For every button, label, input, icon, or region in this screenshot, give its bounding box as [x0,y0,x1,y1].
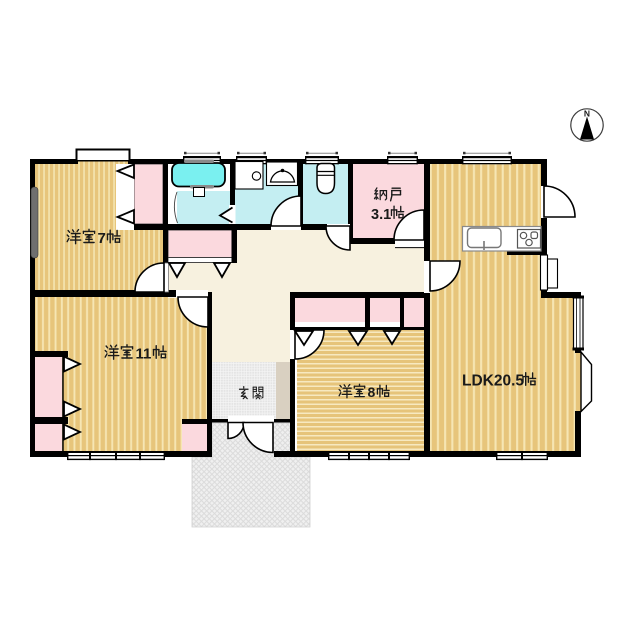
svg-text:8: 8 [368,384,376,400]
svg-text:7: 7 [98,230,106,247]
svg-text:3.1: 3.1 [371,207,391,223]
svg-text:11: 11 [136,346,152,363]
svg-text:LDK20.5: LDK20.5 [462,373,524,390]
svg-text:N: N [584,109,590,119]
